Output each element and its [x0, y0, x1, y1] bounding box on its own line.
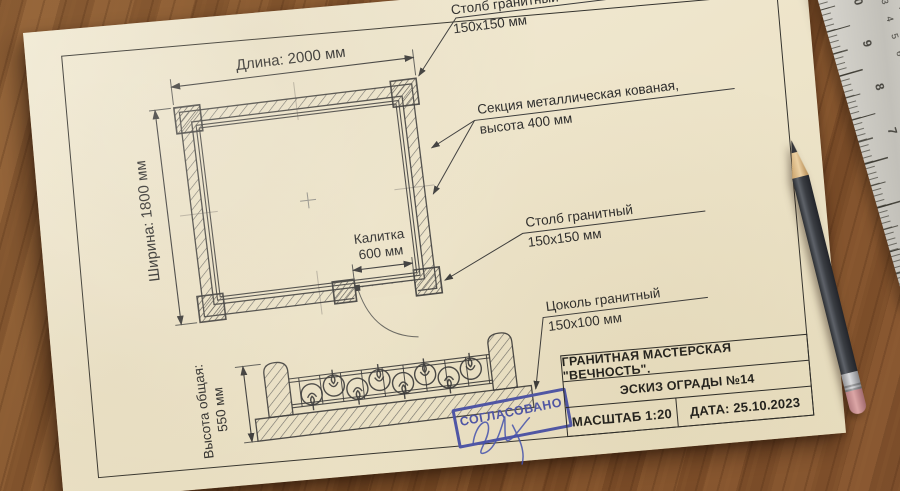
ruler-number: 9 [859, 38, 874, 48]
blueprint-sheet: Длина: 2000 мм Ширина: 1800 мм Калитка 6… [23, 0, 846, 491]
callout-leaders [412, 0, 768, 398]
ruler-number: 10 [849, 0, 866, 7]
ruler-number: 6 [893, 49, 900, 57]
ruler-number: 7 [885, 126, 900, 136]
ruler-number: 4 [883, 15, 895, 23]
pencil-lead [787, 139, 798, 154]
ruler-number: 8 [872, 82, 887, 92]
ruler-number: 5 [888, 32, 900, 40]
plan-view [166, 67, 453, 364]
ruler-number: 3 [878, 0, 890, 6]
desk-scene: Длина: 2000 мм Ширина: 1800 мм Калитка 6… [0, 0, 900, 491]
